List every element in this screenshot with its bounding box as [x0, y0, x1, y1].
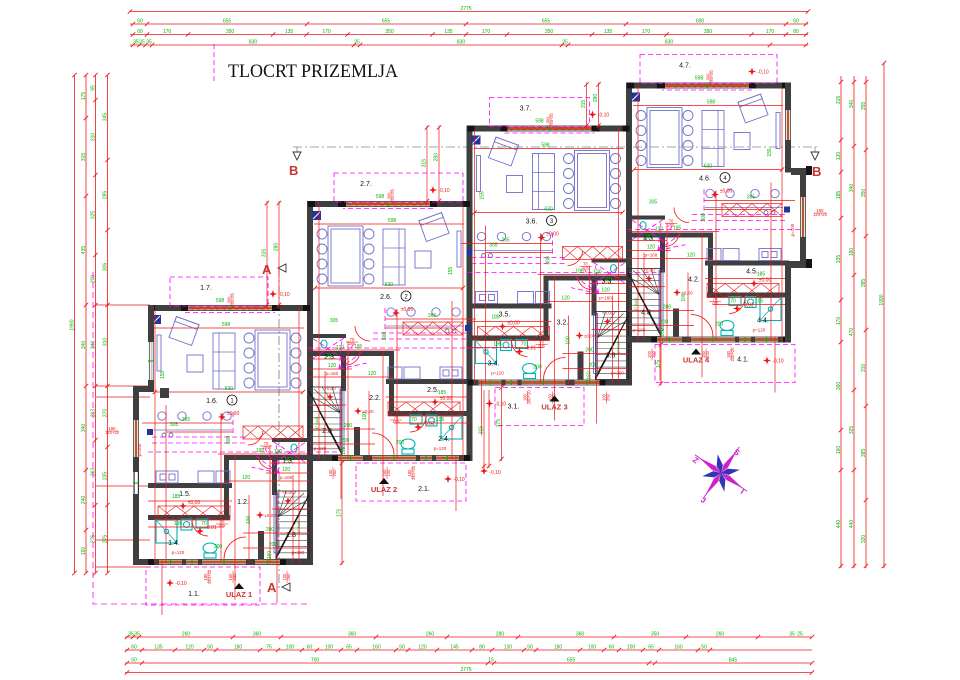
svg-text:130: 130	[836, 152, 842, 161]
svg-text:195: 195	[436, 417, 445, 423]
svg-text:120: 120	[282, 467, 291, 473]
svg-text:440: 440	[836, 520, 842, 529]
svg-text:35: 35	[134, 632, 140, 638]
svg-text:100: 100	[588, 645, 597, 651]
svg-text:70: 70	[411, 417, 417, 423]
svg-text:p=160: p=160	[599, 296, 612, 301]
svg-text:160: 160	[587, 371, 593, 380]
svg-text:95: 95	[90, 85, 96, 91]
svg-text:±0,00: ±0,00	[401, 307, 414, 313]
svg-text:50: 50	[527, 645, 533, 651]
svg-text:315: 315	[581, 100, 587, 109]
svg-text:160: 160	[81, 547, 87, 556]
svg-text:80: 80	[479, 645, 485, 651]
svg-text:17,5x28: 17,5x28	[297, 521, 301, 534]
svg-text:3.4.: 3.4.	[488, 361, 500, 368]
svg-text:365: 365	[428, 313, 437, 319]
svg-text:p=160: p=160	[292, 550, 305, 555]
svg-text:15: 15	[488, 658, 494, 664]
svg-text:135: 135	[154, 645, 163, 651]
svg-text:830: 830	[249, 40, 258, 46]
svg-text:3.8: 3.8	[606, 353, 616, 360]
svg-text:±0,00: ±0,00	[584, 334, 596, 339]
svg-text:60: 60	[137, 19, 143, 25]
svg-text:200: 200	[341, 438, 350, 444]
svg-text:100: 100	[246, 516, 252, 525]
svg-text:ULAZ 4: ULAZ 4	[683, 356, 710, 365]
svg-text:345: 345	[102, 113, 108, 122]
svg-text:3.6.: 3.6.	[526, 219, 538, 226]
svg-text:B: B	[812, 164, 821, 179]
svg-text:2.2.: 2.2.	[369, 395, 381, 402]
svg-text:1.3.: 1.3.	[282, 458, 294, 465]
svg-text:280: 280	[434, 153, 440, 162]
svg-text:3.2.: 3.2.	[557, 320, 569, 327]
svg-text:3.5.: 3.5.	[499, 312, 511, 319]
svg-text:200: 200	[266, 527, 275, 533]
svg-text:305: 305	[170, 422, 179, 428]
svg-text:4.3.: 4.3.	[643, 236, 655, 243]
svg-text:25: 25	[139, 40, 145, 46]
svg-text:60: 60	[137, 29, 143, 35]
svg-text:±0,00: ±0,00	[264, 513, 276, 518]
svg-text:-0,10: -0,10	[489, 470, 501, 476]
svg-text:1.8: 1.8	[286, 532, 296, 539]
svg-text:690: 690	[696, 19, 705, 25]
svg-text:±0,00: ±0,00	[720, 189, 733, 195]
svg-text:35: 35	[146, 40, 152, 46]
svg-text:±0,00: ±0,00	[759, 278, 772, 284]
svg-text:235: 235	[102, 472, 108, 481]
svg-text:280: 280	[593, 94, 599, 103]
svg-text:25: 25	[354, 40, 360, 46]
svg-text:175: 175	[337, 509, 343, 518]
svg-text:335: 335	[836, 255, 842, 264]
svg-text:155: 155	[160, 371, 166, 380]
svg-text:60: 60	[131, 645, 137, 651]
svg-text:160: 160	[372, 645, 381, 651]
svg-text:1.7.: 1.7.	[200, 285, 212, 292]
svg-text:340: 340	[81, 424, 87, 433]
svg-text:-0,01: -0,01	[525, 346, 537, 352]
svg-text:p=100: p=100	[137, 443, 142, 456]
svg-text:435: 435	[81, 246, 87, 255]
svg-text:1990: 1990	[879, 294, 885, 305]
svg-text:305: 305	[649, 200, 658, 206]
svg-text:845: 845	[729, 658, 738, 664]
svg-text:260: 260	[182, 632, 191, 638]
svg-text:ULAZ 2: ULAZ 2	[371, 485, 397, 494]
svg-text:385: 385	[861, 279, 867, 288]
svg-text:598: 598	[216, 298, 225, 304]
svg-text:A: A	[267, 580, 277, 595]
svg-text:365: 365	[182, 417, 191, 423]
svg-text:315: 315	[262, 249, 268, 258]
svg-text:-0,01: -0,01	[742, 303, 754, 309]
svg-text:300: 300	[382, 332, 388, 341]
svg-text:320: 320	[861, 535, 867, 544]
svg-text:p=100: p=100	[790, 223, 795, 236]
svg-text:4.5.: 4.5.	[746, 269, 758, 276]
svg-text:200: 200	[660, 320, 669, 326]
svg-text:±0,00: ±0,00	[546, 232, 559, 238]
svg-text:170: 170	[642, 29, 651, 35]
svg-text:60: 60	[793, 19, 799, 25]
svg-text:65: 65	[346, 645, 352, 651]
svg-text:-0,10: -0,10	[495, 402, 507, 408]
svg-text:60: 60	[131, 658, 137, 664]
svg-text:25: 25	[562, 40, 568, 46]
svg-text:70: 70	[201, 521, 207, 527]
svg-text:120: 120	[336, 345, 345, 351]
svg-text:160: 160	[674, 645, 683, 651]
svg-text:200: 200	[214, 544, 223, 550]
svg-text:+0,00: +0,00	[282, 490, 294, 495]
svg-text:300: 300	[226, 436, 232, 445]
svg-text:300: 300	[546, 256, 552, 265]
svg-text:60: 60	[609, 645, 615, 651]
svg-text:160: 160	[836, 446, 842, 455]
svg-text:310: 310	[861, 364, 867, 373]
svg-text:598: 598	[707, 100, 716, 106]
svg-text:2.3.: 2.3.	[324, 354, 336, 361]
svg-text:160: 160	[341, 447, 347, 456]
svg-text:325: 325	[90, 211, 96, 220]
svg-text:120: 120	[601, 288, 610, 294]
svg-text:195: 195	[755, 299, 764, 305]
svg-text:385: 385	[861, 449, 867, 458]
svg-text:365: 365	[747, 195, 756, 201]
svg-text:120: 120	[593, 270, 602, 276]
svg-text:4.7.: 4.7.	[679, 63, 691, 70]
svg-text:285: 285	[102, 191, 108, 200]
svg-text:p=160: p=160	[633, 328, 646, 333]
svg-text:275: 275	[102, 535, 108, 544]
svg-text:175: 175	[81, 92, 87, 101]
svg-text:315: 315	[81, 153, 87, 162]
svg-text:270: 270	[102, 409, 108, 418]
svg-text:p=160: p=160	[280, 475, 293, 480]
svg-text:175: 175	[496, 419, 502, 428]
svg-text:598: 598	[222, 322, 231, 328]
svg-text:200: 200	[663, 305, 672, 311]
svg-text:4.4.: 4.4.	[757, 318, 769, 325]
svg-text:655: 655	[567, 658, 576, 664]
svg-text:70: 70	[521, 342, 527, 348]
svg-text:4.6.: 4.6.	[699, 176, 711, 183]
svg-text:2775: 2775	[460, 6, 471, 12]
svg-text:120: 120	[647, 245, 656, 251]
svg-text:1990: 1990	[69, 319, 75, 330]
svg-text:830: 830	[457, 40, 466, 46]
svg-text:305: 305	[102, 263, 108, 272]
svg-text:200: 200	[533, 365, 542, 371]
svg-text:17,5x28: 17,5x28	[617, 341, 621, 354]
svg-text:±0,00: ±0,00	[507, 321, 520, 327]
svg-text:170: 170	[766, 29, 775, 35]
svg-text:160: 160	[660, 328, 666, 337]
svg-text:-0,01: -0,01	[423, 421, 435, 427]
svg-text:100: 100	[362, 412, 368, 421]
svg-text:±0,00: ±0,00	[440, 396, 453, 402]
svg-text:p=120: p=120	[753, 328, 766, 333]
svg-text:ULAZ 1: ULAZ 1	[226, 590, 252, 599]
svg-text:-0,10: -0,10	[598, 113, 610, 119]
svg-text:-0,10: -0,10	[757, 70, 769, 76]
svg-text:35: 35	[128, 632, 134, 638]
svg-text:±0,00: ±0,00	[227, 411, 240, 417]
svg-text:17,5x28: 17,5x28	[315, 417, 319, 430]
svg-text:-0,10: -0,10	[453, 477, 465, 483]
svg-text:310: 310	[102, 338, 108, 347]
svg-text:60: 60	[307, 645, 313, 651]
svg-text:355: 355	[861, 102, 867, 111]
svg-text:145: 145	[450, 645, 459, 651]
svg-text:830: 830	[665, 40, 674, 46]
svg-text:598: 598	[535, 119, 544, 125]
svg-text:50: 50	[399, 645, 405, 651]
svg-text:175: 175	[656, 360, 662, 369]
svg-text:340: 340	[849, 100, 855, 109]
svg-text:35: 35	[789, 632, 795, 638]
svg-text:ULAZ 3: ULAZ 3	[541, 403, 567, 412]
svg-text:17,5x28: 17,5x28	[634, 298, 638, 311]
svg-text:50: 50	[207, 645, 213, 651]
svg-text:120: 120	[242, 475, 251, 481]
svg-text:2.8: 2.8	[322, 428, 332, 435]
svg-text:35: 35	[133, 40, 139, 46]
svg-text:4.1.: 4.1.	[737, 357, 749, 364]
svg-text:135: 135	[604, 29, 613, 35]
svg-text:-0,10: -0,10	[772, 359, 784, 365]
svg-text:315: 315	[479, 426, 485, 435]
svg-text:155: 155	[480, 191, 486, 200]
svg-text:630: 630	[385, 282, 394, 288]
svg-text:260: 260	[426, 632, 435, 638]
svg-text:180: 180	[554, 645, 563, 651]
svg-text:+0,00: +0,00	[602, 311, 614, 316]
svg-text:25: 25	[797, 632, 803, 638]
svg-text:200: 200	[344, 423, 353, 429]
svg-text:p=160: p=160	[645, 253, 658, 258]
svg-text:2.6.: 2.6.	[380, 294, 392, 301]
svg-text:260: 260	[716, 632, 725, 638]
svg-text:4.8: 4.8	[641, 310, 651, 317]
svg-text:598: 598	[376, 194, 385, 200]
svg-text:+0,00: +0,00	[643, 268, 655, 273]
svg-text:2.5.: 2.5.	[427, 387, 439, 394]
svg-text:700: 700	[311, 658, 320, 664]
svg-text:-0,10: -0,10	[438, 188, 450, 194]
svg-text:200: 200	[585, 348, 594, 354]
svg-text:655: 655	[542, 19, 551, 25]
svg-text:2.1.: 2.1.	[418, 486, 430, 493]
svg-text:360: 360	[348, 632, 357, 638]
svg-text:120: 120	[328, 363, 337, 369]
svg-text:655: 655	[382, 19, 391, 25]
svg-text:200: 200	[715, 322, 724, 328]
svg-text:170: 170	[163, 29, 172, 35]
svg-text:1.2.: 1.2.	[237, 499, 249, 506]
svg-text:3.3.: 3.3.	[602, 279, 614, 286]
svg-text:120: 120	[418, 645, 427, 651]
svg-text:2.7.: 2.7.	[360, 181, 372, 188]
svg-text:440: 440	[849, 520, 855, 529]
svg-text:-0,10: -0,10	[175, 581, 187, 587]
svg-text:±0,00: ±0,00	[188, 500, 201, 506]
svg-text:360: 360	[253, 632, 262, 638]
svg-text:155: 155	[448, 267, 454, 276]
svg-text:p=120: p=120	[491, 371, 504, 376]
svg-text:340: 340	[81, 341, 87, 350]
svg-text:160: 160	[267, 551, 273, 560]
svg-text:4.2.: 4.2.	[688, 277, 700, 284]
svg-text:120: 120	[274, 449, 283, 455]
svg-text:135: 135	[285, 29, 294, 35]
svg-text:100: 100	[681, 293, 687, 302]
svg-text:p=160: p=160	[314, 446, 327, 451]
svg-text:1.6.: 1.6.	[206, 398, 218, 405]
svg-text:350: 350	[861, 189, 867, 198]
svg-text:360: 360	[576, 632, 585, 638]
svg-text:p=120: p=120	[434, 446, 447, 451]
svg-text:280: 280	[496, 632, 505, 638]
svg-text:598: 598	[388, 218, 397, 224]
svg-text:655: 655	[223, 19, 232, 25]
svg-text:120: 120	[687, 253, 696, 259]
svg-text:350: 350	[385, 29, 394, 35]
svg-text:180: 180	[234, 645, 243, 651]
svg-text:120: 120	[185, 645, 194, 651]
svg-text:315: 315	[422, 159, 428, 168]
svg-text:75: 75	[266, 645, 272, 651]
svg-text:65: 65	[648, 645, 654, 651]
svg-text:630: 630	[704, 164, 713, 170]
svg-text:340: 340	[849, 184, 855, 193]
svg-text:100: 100	[627, 645, 636, 651]
svg-text:365: 365	[501, 238, 510, 244]
svg-text:350: 350	[545, 29, 554, 35]
svg-text:100: 100	[566, 336, 572, 345]
svg-text:155: 155	[767, 148, 773, 157]
svg-text:360: 360	[836, 382, 842, 391]
svg-text:598: 598	[541, 143, 550, 149]
svg-text:200: 200	[269, 542, 278, 548]
svg-text:B: B	[289, 163, 298, 178]
svg-text:2775: 2775	[460, 667, 471, 673]
svg-text:185: 185	[836, 191, 842, 200]
svg-text:TLOCRT PRIZEMLJA: TLOCRT PRIZEMLJA	[228, 61, 398, 82]
svg-text:p=160: p=160	[611, 371, 624, 376]
svg-text:630: 630	[225, 386, 234, 392]
svg-text:50: 50	[701, 645, 707, 651]
svg-text:120: 120	[561, 296, 570, 302]
svg-text:+0,00: +0,00	[324, 386, 336, 391]
svg-text:170: 170	[482, 29, 491, 35]
svg-text:3.7.: 3.7.	[520, 106, 532, 113]
svg-text:170: 170	[836, 317, 842, 326]
svg-text:350: 350	[704, 29, 713, 35]
svg-text:305: 305	[330, 318, 339, 324]
svg-text:p=160: p=160	[326, 371, 339, 376]
svg-text:3.1.: 3.1.	[508, 404, 520, 411]
svg-text:315: 315	[836, 96, 842, 105]
svg-text:598: 598	[695, 76, 704, 82]
svg-text:200: 200	[396, 440, 405, 446]
svg-text:80: 80	[793, 29, 799, 35]
svg-text:350: 350	[651, 632, 660, 638]
svg-text:1.5.: 1.5.	[179, 491, 191, 498]
svg-text:180: 180	[849, 248, 855, 257]
svg-text:470: 470	[849, 328, 855, 337]
svg-text:350: 350	[226, 29, 235, 35]
svg-text:1.4.: 1.4.	[168, 540, 180, 547]
svg-text:280: 280	[274, 243, 280, 252]
svg-text:630: 630	[544, 207, 553, 213]
svg-text:100: 100	[286, 645, 295, 651]
svg-text:120: 120	[655, 227, 664, 233]
svg-text:2.4.: 2.4.	[438, 436, 450, 443]
svg-text:170: 170	[322, 29, 331, 35]
svg-text:240: 240	[81, 496, 87, 505]
svg-text:p=120: p=120	[172, 550, 185, 555]
svg-text:195: 195	[174, 521, 183, 527]
svg-text:100: 100	[325, 645, 334, 651]
svg-text:305: 305	[489, 243, 498, 249]
svg-text:120: 120	[368, 371, 377, 377]
svg-text:1.1.: 1.1.	[188, 591, 200, 598]
svg-text:325: 325	[849, 426, 855, 435]
svg-text:70: 70	[730, 299, 736, 305]
svg-text:130: 130	[504, 645, 513, 651]
svg-text:-0,10: -0,10	[278, 292, 290, 298]
svg-text:-0,01: -0,01	[205, 525, 217, 531]
svg-text:135: 135	[444, 29, 453, 35]
svg-text:195: 195	[493, 342, 502, 348]
svg-text:300: 300	[701, 213, 707, 222]
svg-text:310: 310	[90, 133, 96, 142]
svg-text:200: 200	[588, 363, 597, 369]
